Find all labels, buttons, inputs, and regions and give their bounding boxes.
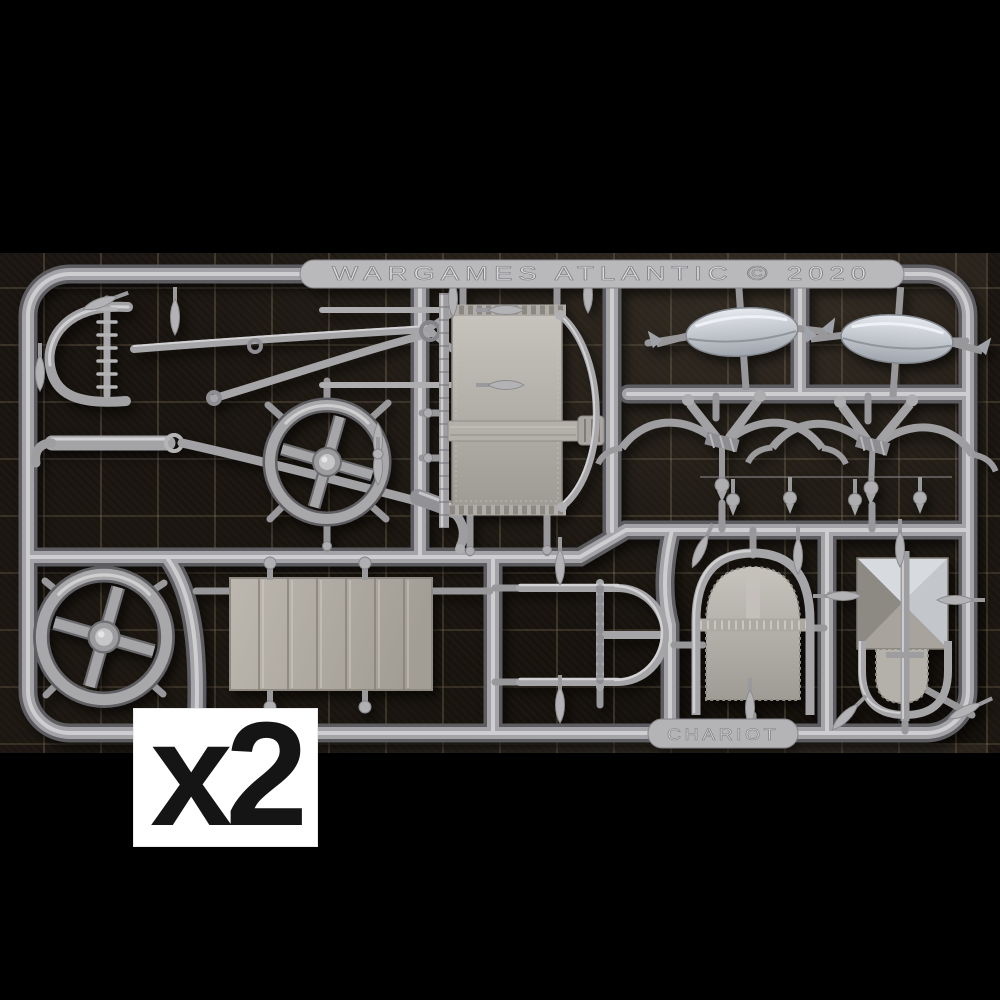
yoke-pendants xyxy=(700,477,952,516)
sprue-body: WARGAMES ATLANTIC © 2020 CHARIOT xyxy=(28,260,998,748)
product-photo: WARGAMES ATLANTIC © 2020 CHARIOT x2 xyxy=(0,0,1000,1000)
chariot-plate-text: CHARIOT xyxy=(667,725,779,744)
quantity-label: x2 xyxy=(133,708,318,847)
cab-rail-frame xyxy=(520,583,665,687)
chariot-side-panel xyxy=(442,293,604,528)
page: { "page": { "background_color": "#000000… xyxy=(0,0,1000,1000)
brand-plate: WARGAMES ATLANTIC © 2020 xyxy=(300,260,904,288)
chariot-plate: CHARIOT xyxy=(648,719,798,748)
chariot-sprue: WARGAMES ATLANTIC © 2020 CHARIOT xyxy=(0,253,1000,753)
plank-floor xyxy=(230,557,432,713)
horse-yoke-left xyxy=(598,390,846,502)
cutting-mat: WARGAMES ATLANTIC © 2020 CHARIOT xyxy=(0,253,1000,753)
brand-plate-text: WARGAMES ATLANTIC © 2020 xyxy=(332,264,872,285)
four-spoke-wheel-lower xyxy=(40,573,168,701)
four-spoke-wheel-upper xyxy=(269,404,385,520)
